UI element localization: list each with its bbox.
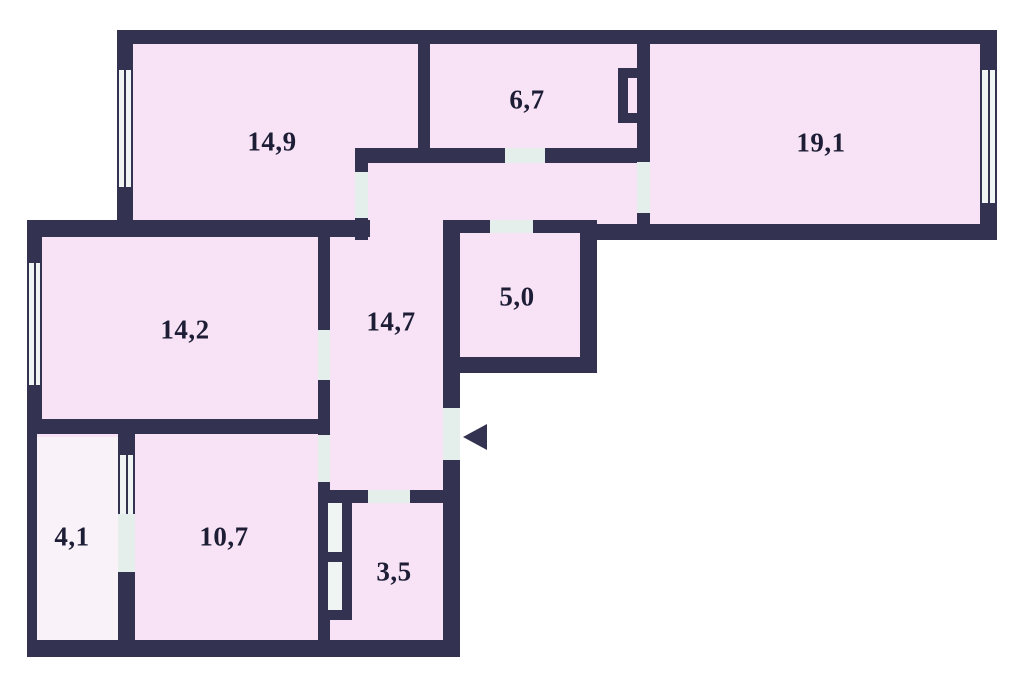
room-label-4-1: 4,1: [54, 522, 89, 553]
wall-corridor-top: [355, 148, 650, 163]
door-room-10-7: [318, 435, 330, 482]
wall-mid-band: [27, 220, 370, 237]
wall-room-14-9-door-jamb-top: [355, 163, 368, 172]
riser-shaft-cell-lower: [328, 562, 342, 610]
wall-room-5-0-bottom: [443, 357, 597, 373]
riser-shaft-divider: [328, 552, 352, 562]
room-label-6-7: 6,7: [509, 85, 544, 116]
floor-plan: 14,9 6,7 19,1 14,2 14,7 5,0 4,1 10,7 3,5: [0, 0, 1024, 687]
door-entrance: [443, 408, 460, 460]
room-label-14-2: 14,2: [160, 315, 209, 346]
riser-shaft-cap: [328, 610, 352, 620]
wall-balcony-left: [27, 433, 37, 657]
room-label-5-0: 5,0: [499, 282, 534, 313]
wall-room-14-2-bottom: [27, 419, 330, 434]
wall-balcony-divider-top: [118, 434, 135, 455]
window-balcony-block: [118, 455, 135, 514]
room-label-10-7: 10,7: [199, 522, 248, 553]
wall-room-6-7-left: [418, 44, 430, 158]
door-room-19-1: [637, 162, 650, 213]
door-room-14-9: [355, 172, 368, 218]
riser-shaft-cell-upper: [328, 503, 342, 552]
door-balcony: [118, 514, 135, 572]
window-room-19-1: [980, 70, 997, 203]
wall-room-19-1-left-stub: [637, 213, 650, 240]
wall-room-5-0-right: [580, 220, 597, 373]
room-label-3-5: 3,5: [376, 557, 411, 588]
wall-room-19-1-left: [637, 44, 650, 162]
wall-room-14-9-door-jamb-bottom: [355, 218, 368, 240]
duct-bottom-bar: [618, 113, 650, 123]
door-room-5-0: [490, 220, 533, 233]
window-room-14-2: [27, 263, 42, 385]
door-room-3-5: [368, 490, 410, 503]
window-room-14-9: [117, 70, 133, 187]
room-label-14-7: 14,7: [366, 307, 415, 338]
door-room-14-2: [318, 330, 330, 380]
wall-balcony-divider-bottom: [118, 572, 135, 640]
room-label-14-9: 14,9: [247, 127, 296, 158]
door-room-6-7: [505, 148, 545, 163]
room-label-19-1: 19,1: [796, 128, 845, 159]
wall-bottom-exterior: [27, 640, 460, 657]
wall-top-exterior: [117, 30, 997, 44]
entrance-arrow-icon: [463, 424, 487, 450]
